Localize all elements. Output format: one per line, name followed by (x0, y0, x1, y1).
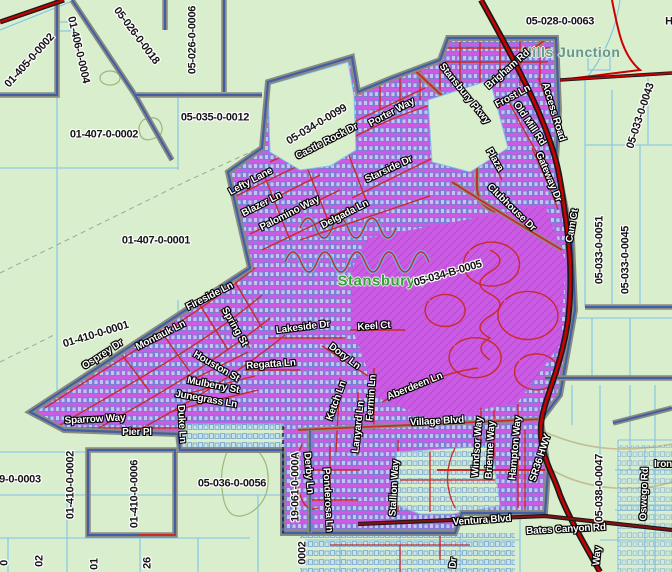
parcel-label: 26 (143, 557, 154, 569)
road-label: Ponderosa Ln (320, 468, 333, 533)
parcel-label: 02 (35, 555, 46, 567)
road-label: Pier Pl (122, 428, 152, 438)
map-canvas[interactable]: Hills JunctionStansbury PStansbury PkwyP… (0, 0, 672, 572)
road-label: Aberdeen Ln (386, 371, 444, 402)
road-label: Duke Ln (175, 405, 187, 444)
road-label: Frost Ln (494, 84, 533, 111)
place-label: Hills Junction (522, 45, 621, 59)
road-label: Windsor Way (471, 416, 485, 477)
road-label: Castle Rock Dr (294, 122, 359, 162)
road-label: Spring St (219, 306, 249, 348)
parcel-label: 05-026-0-0006 (188, 6, 199, 74)
parcel-label: 01-407-0-0002 (70, 130, 138, 141)
parcel-label: 19-061-0-000A (291, 452, 302, 522)
road-label: Starside Dr (364, 155, 415, 186)
parcel-label: 05-038-0-0047 (595, 454, 606, 522)
road-label: SR36 HWY (529, 433, 554, 483)
road-label: Fermin Ln (365, 374, 378, 421)
parcel-label: 05-034-B-0005 (413, 259, 483, 289)
road-label: Old Mill Rd (511, 100, 547, 147)
road-label: Osprey Dr (81, 338, 125, 372)
road-label: Montauk Ln (135, 319, 188, 352)
road-label: Keel Ct (357, 321, 391, 333)
parcel-label: 01-407-0-0001 (122, 236, 190, 247)
parcel-label: 05-035-0-0012 (181, 113, 249, 124)
road-label: Ketch Ln (325, 380, 348, 422)
map-labels-layer: Hills JunctionStansbury PStansbury PkwyP… (0, 0, 672, 572)
road-label: Gateway Dr (533, 151, 563, 204)
road-label: Clubhouse Dr (485, 182, 537, 233)
road-label: Access Road (539, 82, 566, 143)
parcel-label: 0 (0, 560, 11, 566)
road-label: Village Blvd (410, 416, 465, 429)
road-label: Brienne Way (484, 421, 497, 479)
road-label: Dr (449, 557, 460, 569)
road-label: Ventura Blvd (452, 514, 511, 528)
parcel-label: 05-028-0-0063 (526, 17, 594, 28)
road-label: Lefty Lane (227, 166, 274, 197)
road-label: Junegrass Ln (174, 390, 237, 411)
road-label: Blazer Ln (240, 191, 283, 220)
road-label: Fireside Ln (185, 281, 235, 313)
road-label: Regatta Ln (246, 358, 296, 371)
road-label: Cam Ct (565, 208, 581, 243)
road-label: Brigham Rd (484, 48, 532, 91)
parcel-label: 01-406-0-0004 (65, 15, 91, 84)
road-label: Iron (654, 460, 672, 470)
place-label: Stansbury P (337, 274, 430, 289)
road-label: Oswego Rd (639, 467, 651, 521)
parcel-label: 01 (90, 558, 101, 570)
road-label: Porter Way (367, 97, 416, 130)
road-label: Plaza (484, 147, 505, 173)
parcel-label: 05-033-0-0043 (625, 82, 657, 150)
road-label: Lakeside Dr (275, 320, 330, 337)
road-label: Sparrow Way (64, 413, 125, 426)
road-label: Stallion Way (389, 459, 402, 516)
parcel-label: 01-405-0-0002 (3, 32, 57, 90)
road-label: Bates Canyon Rd (526, 523, 606, 537)
parcel-label: 01-410-0-0002 (66, 451, 77, 519)
road-label: Hampton Way (508, 416, 524, 481)
parcel-label: 9-0-0003 (0, 475, 41, 486)
road-label: Mulberry St (186, 376, 240, 396)
parcel-label: 05-026-0-0018 (111, 5, 161, 66)
road-label: Way (592, 546, 604, 566)
parcel-label: 05-033-0-0051 (595, 216, 606, 284)
road-label: Houston St (191, 350, 240, 384)
parcel-label: 0002 (298, 541, 309, 564)
parcel-label: 05-036-0-0056 (198, 479, 266, 490)
road-label: Derby Ln (301, 452, 315, 494)
parcel-label: 01-410-0-0006 (130, 460, 141, 528)
parcel-label: 05-034-0-0099 (285, 103, 349, 148)
parcel-label: H (665, 17, 672, 28)
road-label: Lanyard Ln (351, 401, 366, 454)
road-label: Stansbury Pkwy (437, 62, 492, 126)
road-label: Dory Ln (326, 342, 361, 372)
road-label: Delgada Ln (320, 199, 371, 231)
road-label: Palomino Way (259, 195, 322, 234)
parcel-label: 05-033-0-0045 (621, 226, 632, 294)
parcel-label: 01-410-0-0001 (62, 320, 131, 350)
